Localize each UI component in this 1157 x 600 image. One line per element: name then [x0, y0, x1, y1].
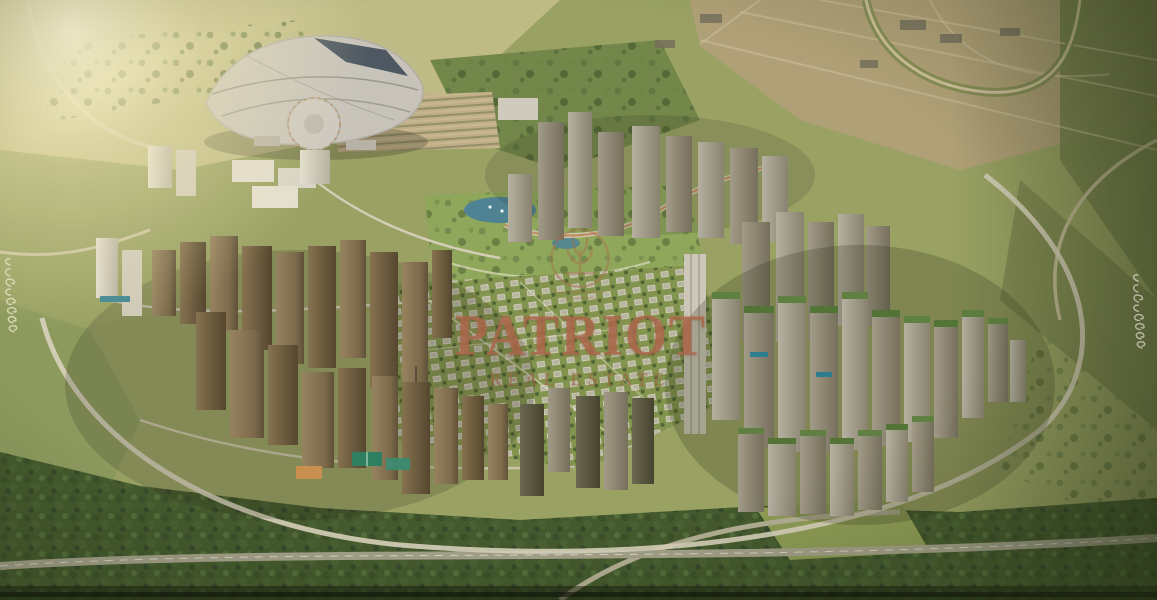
aerial-city-render: PATRIOT REAL ESTATE [0, 0, 1157, 600]
vignette [0, 0, 1157, 600]
scene-canvas [0, 0, 1157, 600]
